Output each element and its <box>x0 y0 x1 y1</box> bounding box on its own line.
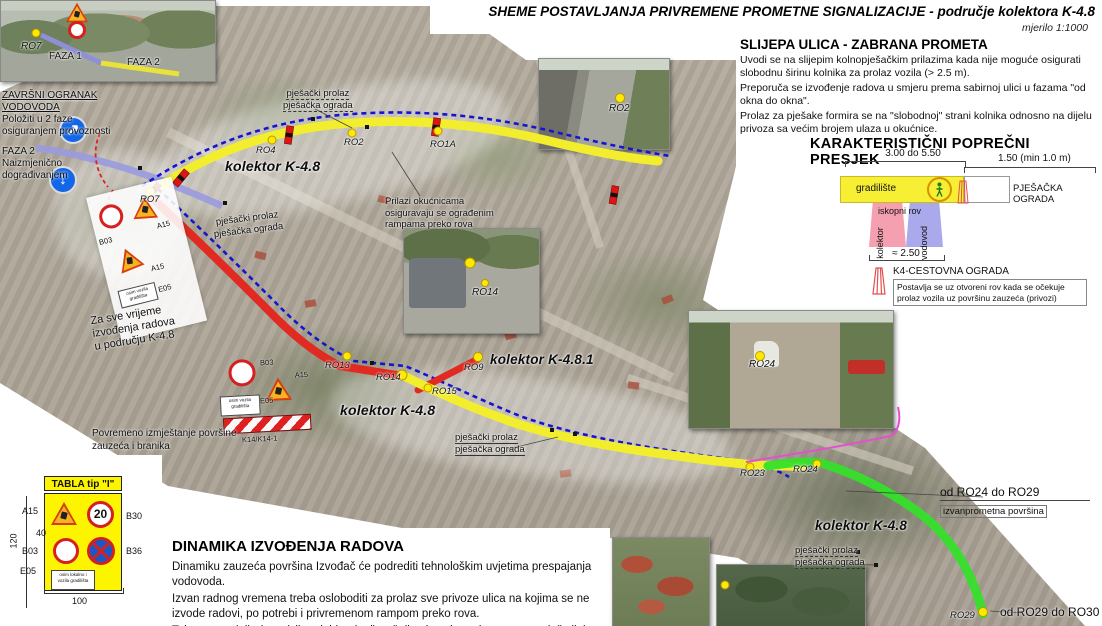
collector-label-k481: kolektor K-4.8.1 <box>490 352 594 367</box>
tabla-label-e05: E05 <box>20 566 36 576</box>
leader-lines <box>315 109 1022 613</box>
speed-limit-sign: 20 <box>87 501 114 528</box>
marker-label-ro24: RO24 <box>793 464 818 475</box>
sign-code-a15: A15 <box>150 261 165 273</box>
no-traffic-sign-icon <box>228 359 256 387</box>
note-pjesacki-prolaz: pješački prolaz pješačka ograda <box>455 432 525 455</box>
route-node-dots <box>138 117 878 567</box>
tabla-dim-height: 120 <box>9 533 19 548</box>
collector-label-k48: kolektor K-4.8 <box>225 158 320 174</box>
dinamika-body: Dinamiku zauzeća površina Izvođač će pod… <box>172 560 614 626</box>
sign-code-b03: B03 <box>260 358 274 368</box>
note-zavrsni-ogranak: ZAVRŠNI OGRANAK VODOVODA Položiti u 2 fa… <box>2 90 142 138</box>
tabla-board: 20 osim lokalno i vozila gradilišta <box>44 493 122 591</box>
od-ro24-line2: izvanprometna površina <box>940 505 1047 518</box>
collector-label-k48: kolektor K-4.8 <box>815 518 907 533</box>
signalization-scheme-sheet: RO7 FAZA 1 FAZA 2 RO2 RO14 RO24 ↗ ↓ B03 … <box>0 0 1102 626</box>
marker-label-ro15: RO15 <box>432 386 457 397</box>
tabla-label-b03: B03 <box>22 546 38 556</box>
marker-label-ro7: RO7 <box>140 194 160 205</box>
od-ro24-line1: od RO24 do RO29 <box>940 485 1090 501</box>
tabla-dim-width: 100 <box>72 596 87 606</box>
dinamika-heading: DINAMIKA IZVOĐENJA RADOVA <box>172 538 404 555</box>
e05-supplementary-panel: osim lokalno i vozila gradilišta <box>51 570 95 590</box>
roadworks-sign-icon <box>113 244 144 274</box>
note-pjesacki-prolaz: pješački prolaz pješačka ograda <box>795 545 865 568</box>
sign-code-b03: B03 <box>98 235 113 247</box>
collector-label-k48: kolektor K-4.8 <box>340 402 435 418</box>
note-pjesacki-prolaz: pješački prolaz pješačka ograda <box>283 88 353 111</box>
tabla-label-b30: B30 <box>126 511 142 521</box>
marker-label-ro1a: RO1A <box>430 139 456 150</box>
tabla-title-box: TABLA tip "I" <box>44 476 122 491</box>
sign-code-e05: E05 <box>260 396 274 406</box>
marker-label-ro4: RO4 <box>256 145 276 156</box>
no-stopping-sign-icon <box>87 537 115 565</box>
dinamika-l2: Izvan radnog vremena treba osloboditi za… <box>172 592 614 622</box>
e05-text: gradilišta <box>231 402 249 408</box>
marker-label-ro13: RO13 <box>325 360 350 371</box>
marker-label-ro23: RO23 <box>740 468 765 479</box>
magenta-utility-line <box>746 407 899 462</box>
marker-label-ro9: RO9 <box>464 362 484 373</box>
tabla-label-b36: B36 <box>126 546 142 556</box>
k14-barrier-marks <box>147 118 619 205</box>
marker-label-ro14: RO14 <box>376 372 401 383</box>
marker-label-ro2: RO2 <box>344 137 364 148</box>
e05-supplementary-panel: osim vozila gradilišta <box>220 394 261 416</box>
marker-label-ro29: RO29 <box>950 610 975 621</box>
tabla-dim-40: 40 <box>36 528 46 538</box>
scale-label: mjerilo 1:1000 <box>1022 22 1088 34</box>
note-od-ro29: od RO29 do RO30 <box>1000 607 1099 619</box>
no-traffic-sign-icon <box>53 538 79 564</box>
roadworks-sign-icon <box>51 502 77 525</box>
sign-code-a15: A15 <box>294 370 308 380</box>
note-od-ro24: od RO24 do RO29 izvanprometna površina <box>940 485 1090 519</box>
e05-text: osim lokalno i <box>59 572 86 577</box>
dinamika-l1: Dinamiku zauzeća površina Izvođač će pod… <box>172 560 614 590</box>
tabla-legend: 120 TABLA tip "I" 20 osim lokalno i vozi… <box>14 464 146 624</box>
note-faza2: FAZA 2 Naizmjenično dograđivanjem <box>2 146 122 182</box>
sign-code-e05: E05 <box>157 282 172 294</box>
sheet-title: SHEME POSTAVLJANJA PRIVREMENE PROMETNE S… <box>440 4 1095 19</box>
note-povremeno: Povremeno izmještanje površine zauzeća i… <box>92 428 262 453</box>
tabla-label-a15: A15 <box>22 506 38 516</box>
sign-code-a15: A15 <box>156 219 171 231</box>
e05-text: vozila gradilišta <box>58 578 89 583</box>
no-traffic-sign-icon <box>97 202 126 231</box>
dim-line <box>44 588 124 594</box>
note-prilazi-okucnicama: Prilazi okućnicama osiguravaju se ograđe… <box>385 196 495 231</box>
